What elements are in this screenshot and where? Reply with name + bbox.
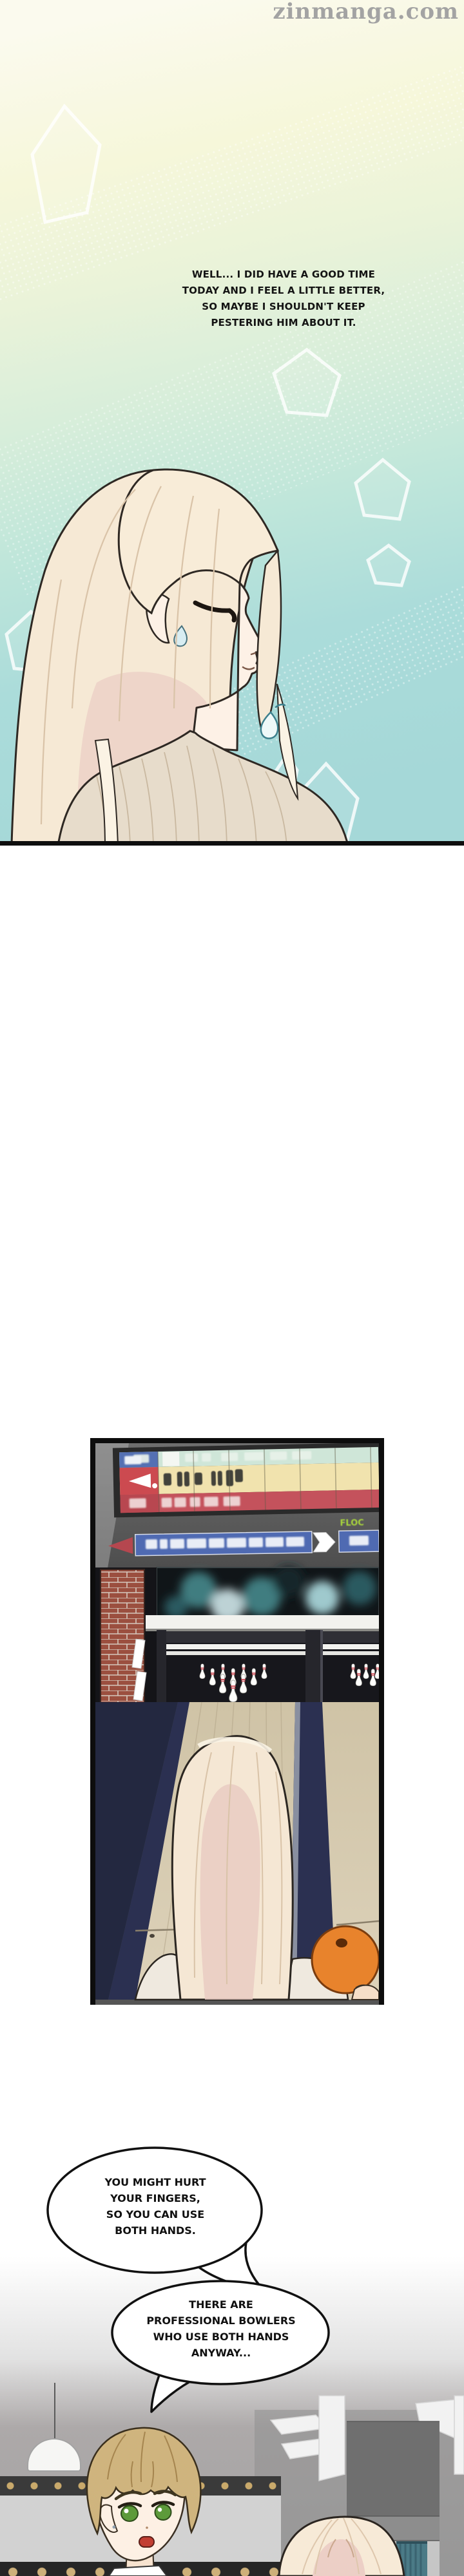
bubble-line: WHO USE BOTH HANDS bbox=[120, 2329, 322, 2345]
panel-reflection: WELL... I DID HAVE A GOOD TIME TODAY AND… bbox=[0, 0, 464, 846]
scoreboard bbox=[113, 1443, 379, 1517]
monologue-line: SO MAYBE I SHOULDN'T KEEP bbox=[103, 299, 464, 315]
speech-bubble-2-text: THERE ARE PROFESSIONAL BOWLERS WHO USE B… bbox=[120, 2297, 322, 2361]
speech-bubble-1-text: YOU MIGHT HURT YOUR FINGERS, SO YOU CAN … bbox=[55, 2174, 255, 2239]
bubble-line: YOUR FINGERS, bbox=[55, 2190, 255, 2206]
monologue-line: WELL... I DID HAVE A GOOD TIME bbox=[103, 267, 464, 283]
bubble-line: YOU MIGHT HURT bbox=[55, 2174, 255, 2190]
bubble-line: PROFESSIONAL BOWLERS bbox=[120, 2313, 322, 2329]
blonde-woman-profile bbox=[12, 469, 348, 846]
ball-finger-hole bbox=[336, 1938, 347, 1947]
bowling-artwork: FLOC bbox=[95, 1443, 379, 2010]
bubble-line: SO YOU CAN USE bbox=[55, 2206, 255, 2222]
hair-side-lock bbox=[257, 551, 281, 735]
earring-icon bbox=[113, 2526, 116, 2529]
monologue-line: TODAY AND I FEEL A LITTLE BETTER, bbox=[103, 283, 464, 299]
bubble-line: THERE ARE bbox=[120, 2297, 322, 2313]
brown-haired-man bbox=[55, 2423, 222, 2576]
bubble-line: BOTH HANDS. bbox=[55, 2222, 255, 2239]
open-mouth bbox=[139, 2537, 154, 2547]
monologue-text: WELL... I DID HAVE A GOOD TIME TODAY AND… bbox=[103, 267, 464, 331]
lane-post bbox=[305, 1630, 322, 1704]
nose bbox=[146, 2526, 148, 2529]
hair-shadow bbox=[200, 1785, 260, 2000]
shirt-collar bbox=[109, 2566, 167, 2576]
screen-label: FLOC bbox=[340, 1519, 364, 1529]
lane-post bbox=[157, 1630, 166, 1704]
bubble-line: ANYWAY... bbox=[120, 2345, 322, 2361]
site-watermark: zinmanga.com bbox=[273, 0, 459, 24]
manga-page: zinmanga.com bbox=[0, 0, 464, 2576]
panel-bowling-alley: FLOC bbox=[90, 1438, 384, 2015]
panel1-artwork bbox=[0, 0, 464, 846]
projection-screen bbox=[157, 1566, 379, 1622]
pillar-dark bbox=[347, 2421, 440, 2516]
monologue-line: PESTERING HIM ABOUT IT. bbox=[103, 315, 464, 331]
bowling-ball bbox=[312, 1926, 379, 1993]
blonde-woman-head bbox=[274, 2515, 409, 2576]
